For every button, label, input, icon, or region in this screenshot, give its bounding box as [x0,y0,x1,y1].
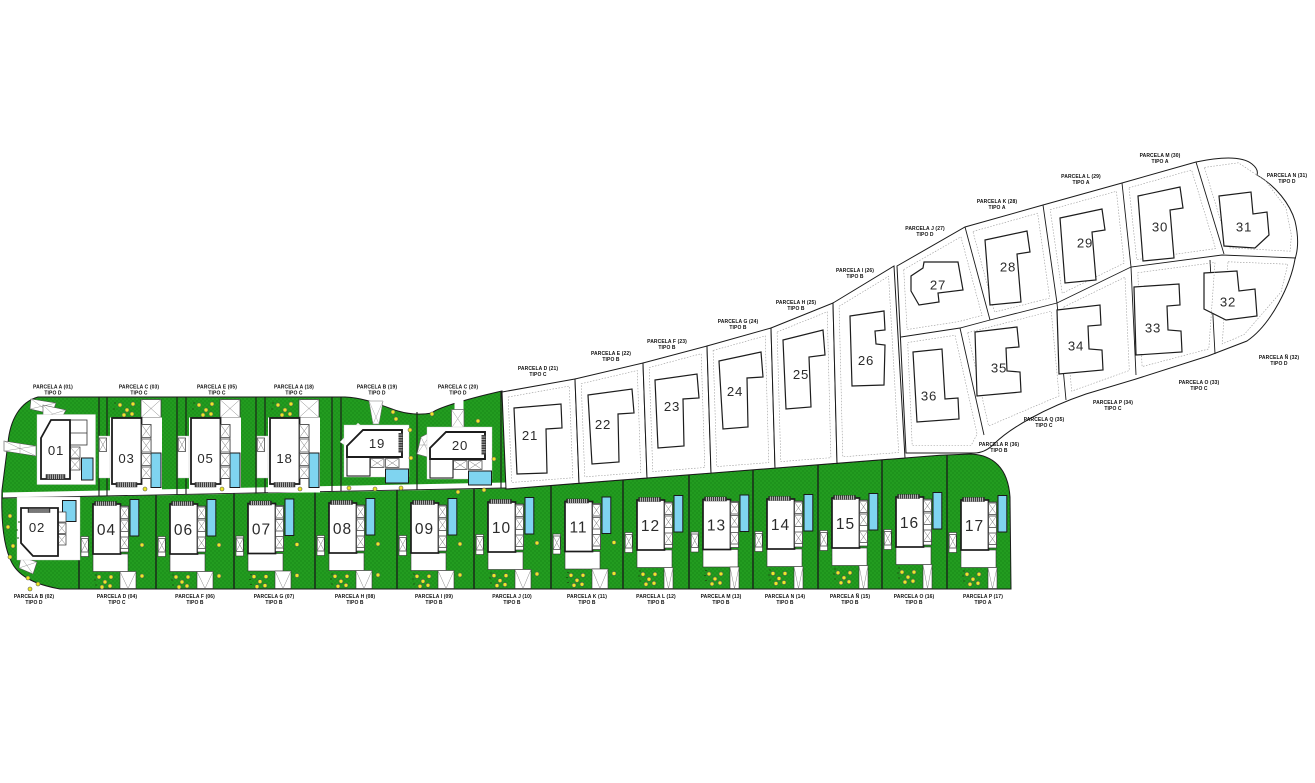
svg-text:TIPO B: TIPO B [729,325,747,331]
svg-text:TIPO C: TIPO C [130,391,148,397]
svg-text:29: 29 [1077,236,1093,251]
svg-text:08: 08 [333,521,352,538]
svg-text:TIPO C: TIPO C [1035,423,1053,429]
svg-text:14: 14 [771,517,790,534]
svg-text:TIPO B: TIPO B [346,600,364,606]
svg-text:TIPO D: TIPO D [1278,179,1296,185]
svg-text:TIPO D: TIPO D [44,391,62,397]
svg-text:TIPO D: TIPO D [368,391,386,397]
svg-text:TIPO B: TIPO B [265,600,283,606]
svg-text:TIPO D: TIPO D [25,600,43,606]
svg-text:TIPO B: TIPO B [658,345,676,351]
svg-text:05: 05 [197,451,213,466]
svg-text:12: 12 [641,518,660,535]
svg-text:TIPO C: TIPO C [208,391,226,397]
svg-text:TIPO D: TIPO D [1270,361,1288,367]
svg-text:10: 10 [492,520,511,537]
svg-text:36: 36 [921,389,937,404]
svg-text:TIPO D: TIPO D [916,232,934,238]
svg-text:25: 25 [793,367,809,382]
svg-text:TIPO C: TIPO C [1104,406,1122,412]
svg-text:TIPO B: TIPO B [990,448,1008,454]
svg-text:TIPO C: TIPO C [529,372,547,378]
svg-text:TIPO B: TIPO B [905,600,923,606]
svg-text:07: 07 [252,522,271,539]
svg-text:11: 11 [569,520,587,537]
svg-text:PARCELA Ñ (15): PARCELA Ñ (15) [830,593,871,600]
svg-text:20: 20 [452,438,468,453]
svg-text:TIPO B: TIPO B [647,600,665,606]
svg-text:13: 13 [707,518,726,535]
svg-text:21: 21 [522,428,538,443]
svg-text:30: 30 [1152,220,1168,235]
svg-text:26: 26 [858,353,874,368]
svg-text:24: 24 [727,384,743,399]
svg-text:TIPO B: TIPO B [503,600,521,606]
svg-text:TIPO C: TIPO C [108,600,126,606]
svg-text:TIPO B: TIPO B [712,600,730,606]
svg-text:31: 31 [1236,220,1252,235]
svg-text:TIPO B: TIPO B [578,600,596,606]
svg-text:09: 09 [415,521,434,538]
svg-text:TIPO D: TIPO D [449,391,467,397]
svg-text:18: 18 [276,451,292,466]
svg-text:06: 06 [174,522,193,539]
svg-text:TIPO B: TIPO B [186,600,204,606]
svg-text:04: 04 [97,522,116,539]
svg-text:TIPO B: TIPO B [846,274,864,280]
svg-text:35: 35 [991,361,1007,376]
svg-text:TIPO B: TIPO B [841,600,859,606]
svg-text:TIPO B: TIPO B [776,600,794,606]
svg-text:34: 34 [1068,339,1084,354]
svg-text:19: 19 [369,436,385,451]
svg-text:TIPO A: TIPO A [988,205,1005,211]
svg-text:27: 27 [930,278,946,293]
svg-text:TIPO C: TIPO C [1190,386,1208,392]
svg-text:23: 23 [664,399,680,414]
svg-text:TIPO A: TIPO A [974,600,991,606]
svg-text:TIPO A: TIPO A [1151,159,1168,165]
svg-text:TIPO B: TIPO B [787,306,805,312]
svg-text:TIPO A: TIPO A [1072,180,1089,186]
svg-text:28: 28 [1000,260,1016,275]
svg-text:03: 03 [118,451,134,466]
svg-text:TIPO B: TIPO B [425,600,443,606]
svg-text:32: 32 [1220,295,1236,310]
svg-text:01: 01 [48,443,64,458]
svg-text:17: 17 [965,518,984,535]
svg-text:PARCELA Ñ (32): PARCELA Ñ (32) [1259,354,1300,361]
svg-text:15: 15 [836,516,855,533]
svg-text:22: 22 [595,417,611,432]
svg-text:TIPO B: TIPO B [602,357,620,363]
svg-text:TIPO C: TIPO C [285,391,303,397]
svg-text:16: 16 [900,515,919,532]
svg-text:02: 02 [29,520,45,535]
svg-text:33: 33 [1145,321,1161,336]
